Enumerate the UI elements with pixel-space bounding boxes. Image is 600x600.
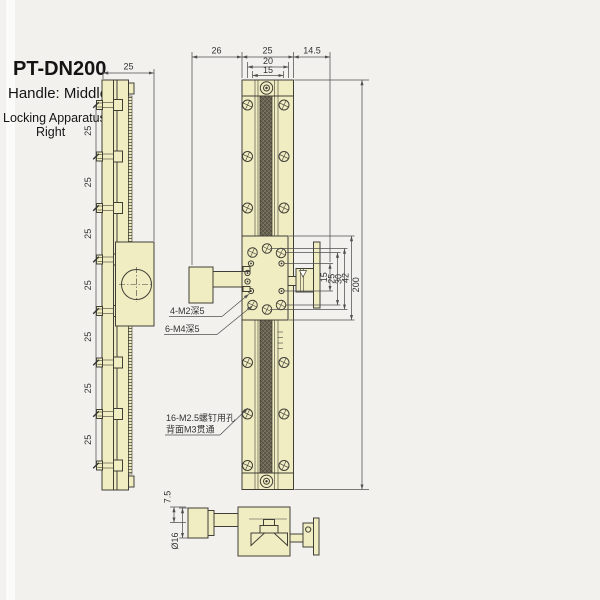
dim-25: 25 — [262, 46, 272, 56]
pitch-dim-label: 25 — [83, 435, 93, 445]
pitch-dim-label: 25 — [83, 280, 93, 290]
bottom-dimensions: 7.5 Ø16 — [163, 491, 189, 550]
bottom-view: 7.5 Ø16 — [163, 491, 320, 556]
pitch-dim-label: 25 — [83, 332, 93, 342]
dim-200-right: 200 — [351, 277, 361, 292]
pitch-dim-label: 25 — [83, 177, 93, 187]
lock-lever-end — [314, 518, 320, 555]
dim-14-5: 14.5 — [303, 46, 321, 56]
dovetail-way — [260, 96, 272, 236]
callout-m4-label: 6-M4深5 — [165, 324, 200, 334]
locking-note-line2: Right — [36, 125, 66, 139]
dovetail-way — [260, 320, 272, 473]
front-view: 26 25 14.5 20 15 15 25 30 — [164, 46, 369, 490]
dim-7-5: 7.5 — [163, 491, 173, 504]
pitch-dim-label: 25 — [83, 126, 93, 136]
dim-26: 26 — [211, 46, 221, 56]
dim-15-top: 15 — [263, 65, 273, 75]
technical-drawing-page: PT-DN200 Handle: Middle Locking Apparatu… — [0, 0, 600, 600]
drawing-title: PT-DN200 — [13, 58, 106, 80]
dim-knob-diameter: Ø16 — [170, 532, 180, 549]
side-width-label: 25 — [123, 62, 133, 72]
drawing-canvas: PT-DN200 Handle: Middle Locking Apparatu… — [0, 0, 600, 600]
dim-42-right: 42 — [341, 273, 351, 283]
callout-m25-line2: 背面M3贯通 — [166, 424, 215, 435]
handle-note: Handle: Middle — [8, 85, 108, 102]
callout-m25-line1: 16-M2.5螺钉用孔 — [166, 413, 235, 423]
pitch-dim-label: 25 — [83, 229, 93, 239]
knob-end — [188, 508, 208, 538]
callout-m2-label: 4-M2深5 — [170, 306, 205, 316]
drive-handle — [189, 267, 242, 303]
side-view: 25 25 25 25 25 25 25 25 — [83, 62, 154, 491]
locking-note-line1: Locking Apparatus: — [3, 111, 109, 125]
callout-m25: 16-M2.5螺钉用孔 背面M3贯通 — [165, 408, 248, 435]
pitch-dim-label: 25 — [83, 383, 93, 393]
